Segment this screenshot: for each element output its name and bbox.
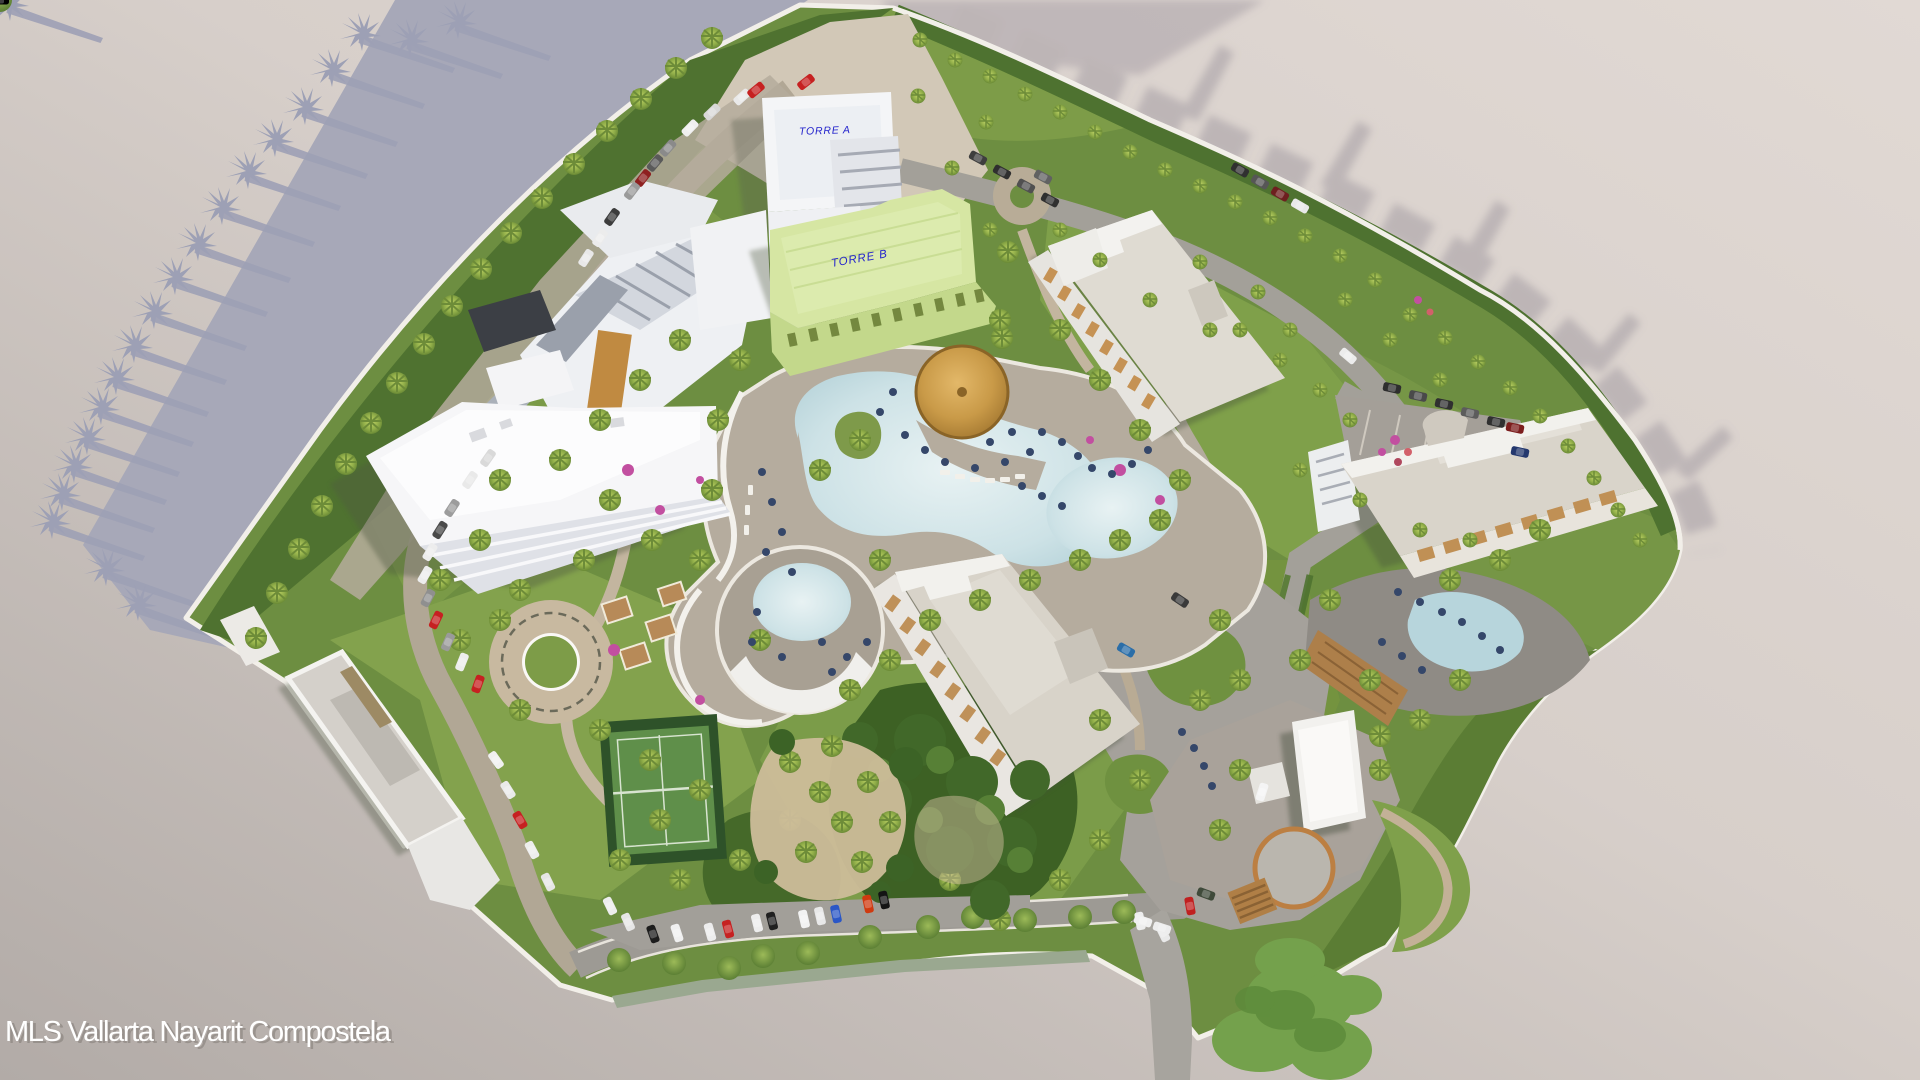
svg-text:MLS Vallarta Nayarit Compostel: MLS Vallarta Nayarit Compostela [5, 1016, 392, 1048]
svg-text:TORRE A: TORRE A [799, 124, 851, 138]
